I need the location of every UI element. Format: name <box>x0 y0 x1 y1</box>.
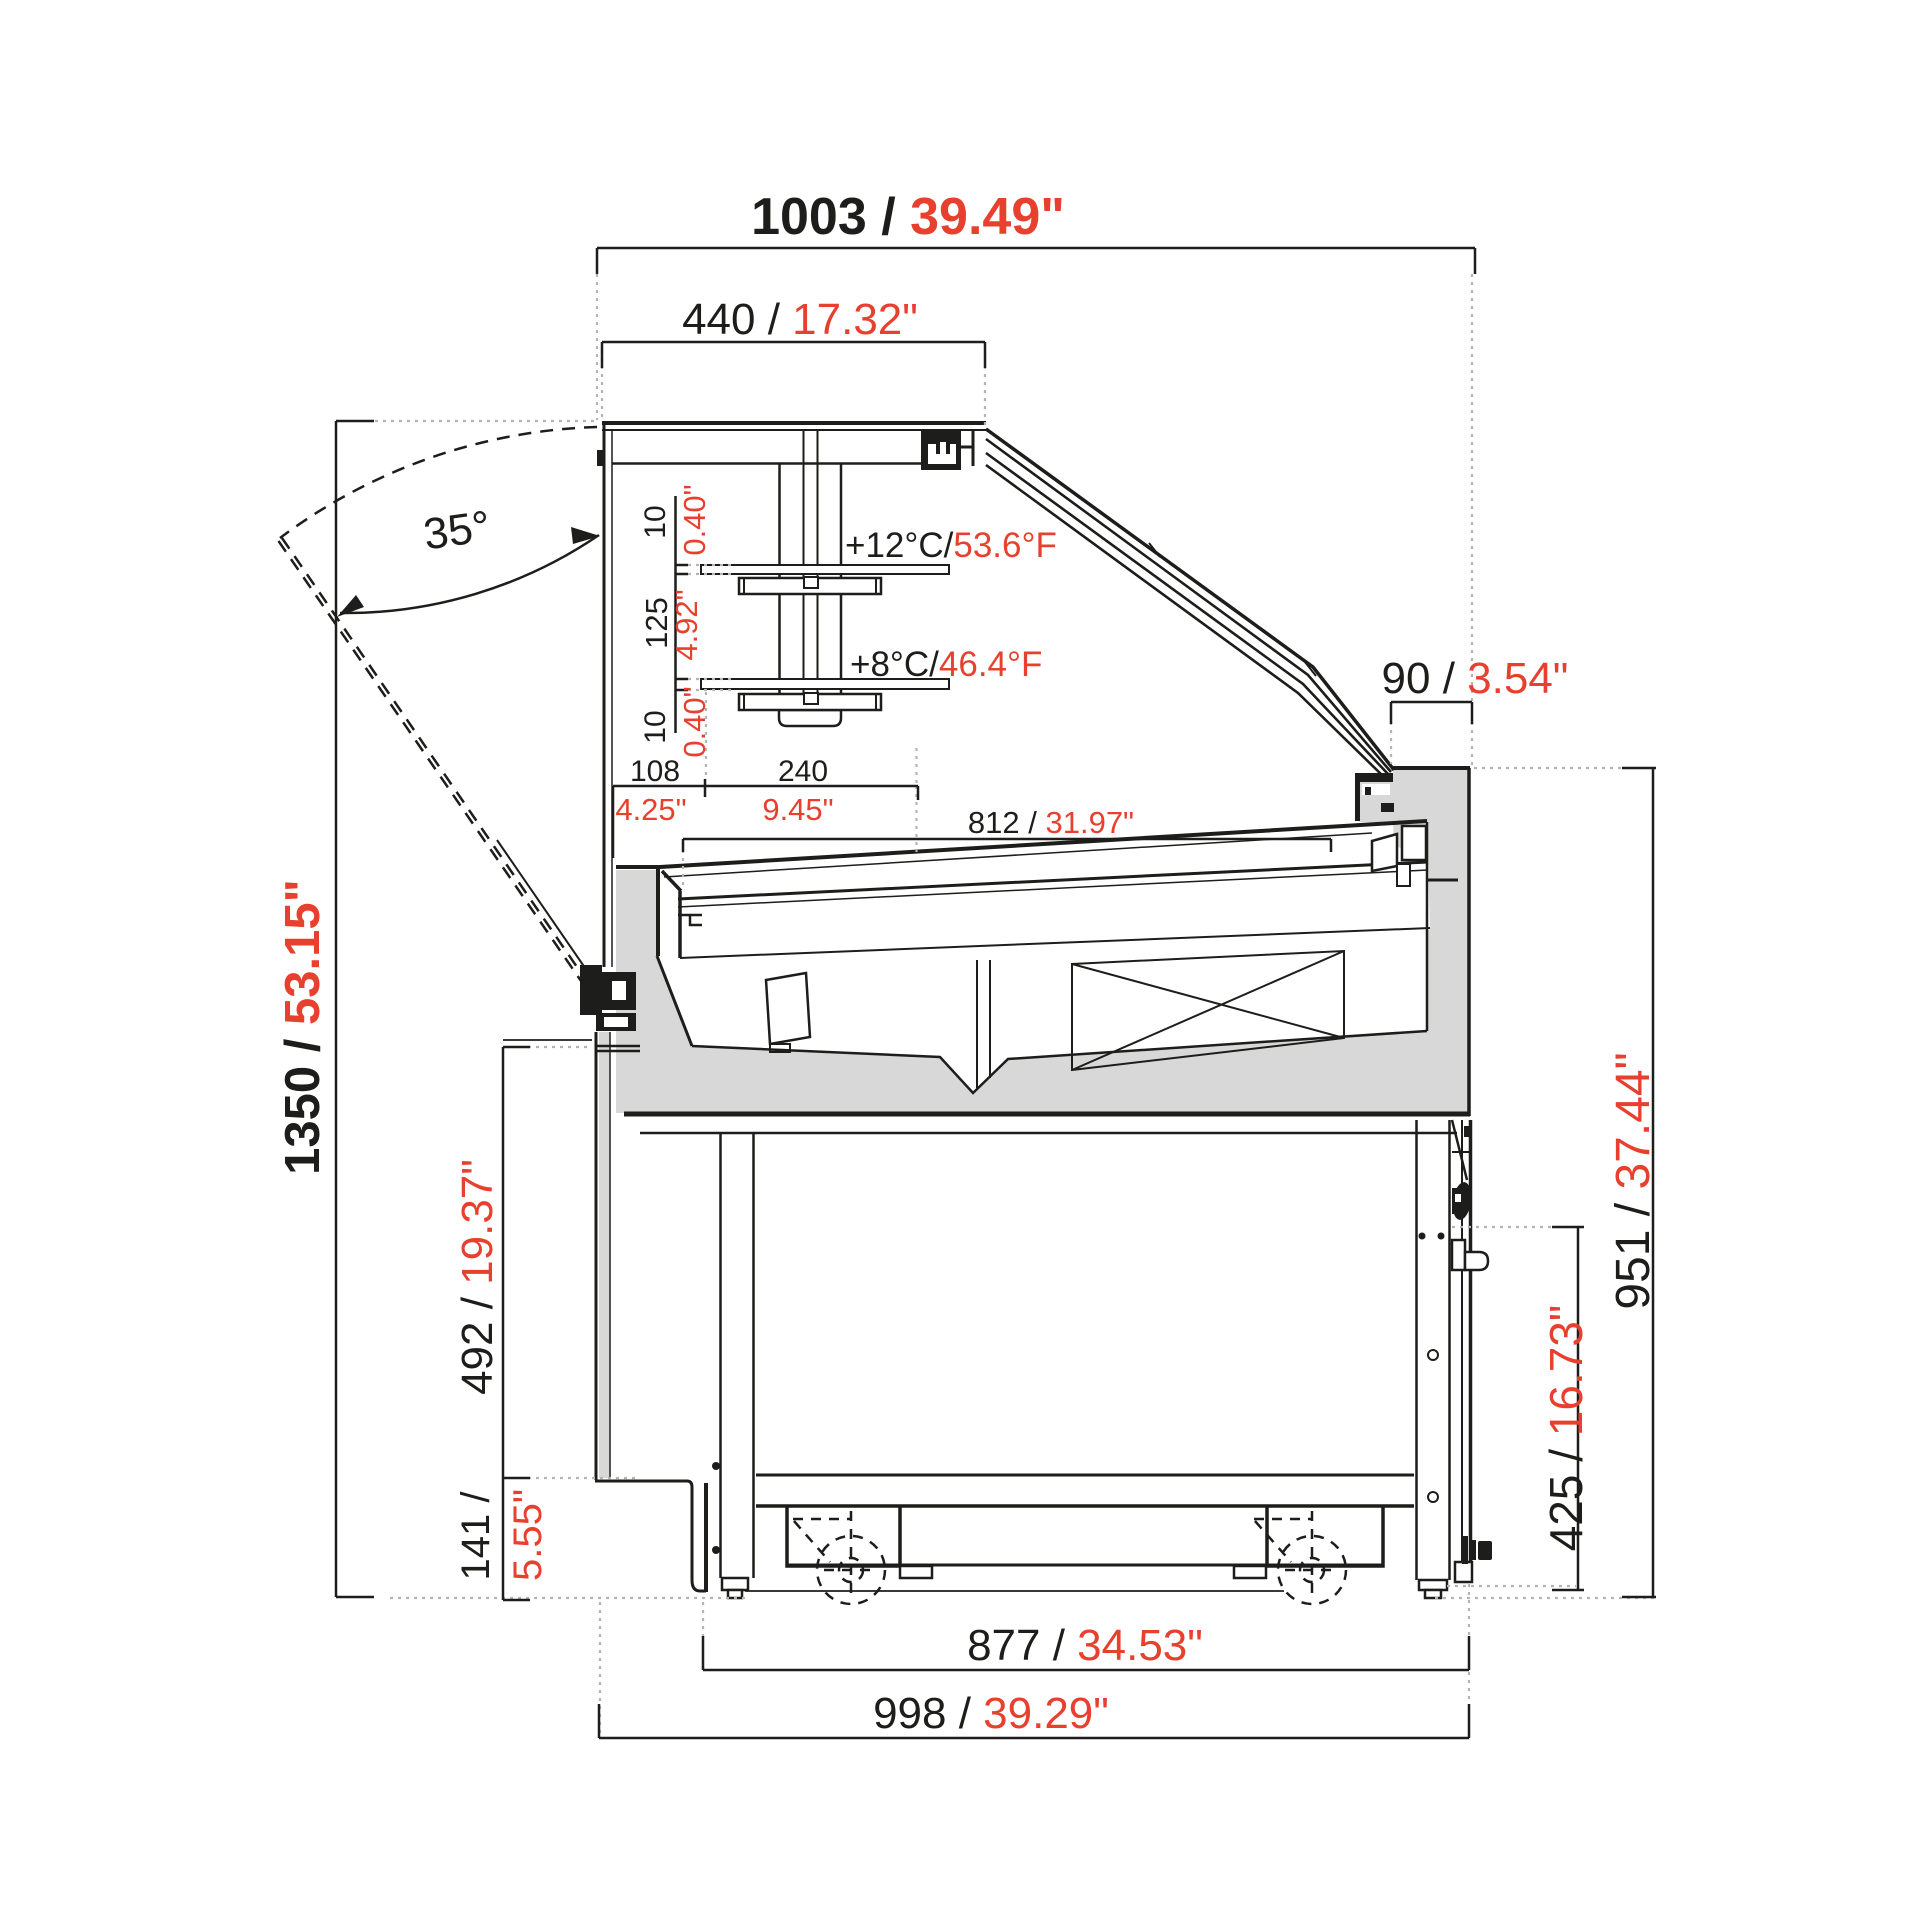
svg-text:90 / 3.54": 90 / 3.54" <box>1382 654 1569 703</box>
svg-text:4.92": 4.92" <box>669 589 704 660</box>
svg-text:141 /: 141 / <box>454 1491 498 1581</box>
svg-text:+8°C/46.4°F: +8°C/46.4°F <box>850 645 1042 684</box>
svg-text:877 / 34.53": 877 / 34.53" <box>967 1621 1203 1670</box>
svg-text:+12°C/53.6°F: +12°C/53.6°F <box>845 526 1057 565</box>
svg-text:0.40": 0.40" <box>677 484 712 555</box>
svg-text:951 / 37.44": 951 / 37.44" <box>1607 1052 1660 1309</box>
svg-text:812 / 31.97": 812 / 31.97" <box>968 805 1134 840</box>
svg-text:35°: 35° <box>421 502 494 560</box>
svg-text:10: 10 <box>639 710 672 743</box>
svg-text:10: 10 <box>639 505 672 538</box>
svg-text:1003 / 39.49": 1003 / 39.49" <box>751 188 1065 246</box>
svg-text:5.55": 5.55" <box>506 1489 550 1581</box>
svg-text:4.25": 4.25" <box>615 792 686 827</box>
svg-text:1350 / 53.15": 1350 / 53.15" <box>276 879 330 1175</box>
svg-text:240: 240 <box>778 755 828 788</box>
svg-text:108: 108 <box>630 755 680 788</box>
svg-text:425 / 16.73": 425 / 16.73" <box>1540 1305 1592 1552</box>
svg-text:492 / 19.37": 492 / 19.37" <box>453 1159 502 1395</box>
svg-text:440 / 17.32": 440 / 17.32" <box>682 295 918 344</box>
svg-text:0.40": 0.40" <box>677 686 712 757</box>
svg-text:9.45": 9.45" <box>762 792 833 827</box>
svg-text:998 / 39.29": 998 / 39.29" <box>873 1689 1109 1738</box>
